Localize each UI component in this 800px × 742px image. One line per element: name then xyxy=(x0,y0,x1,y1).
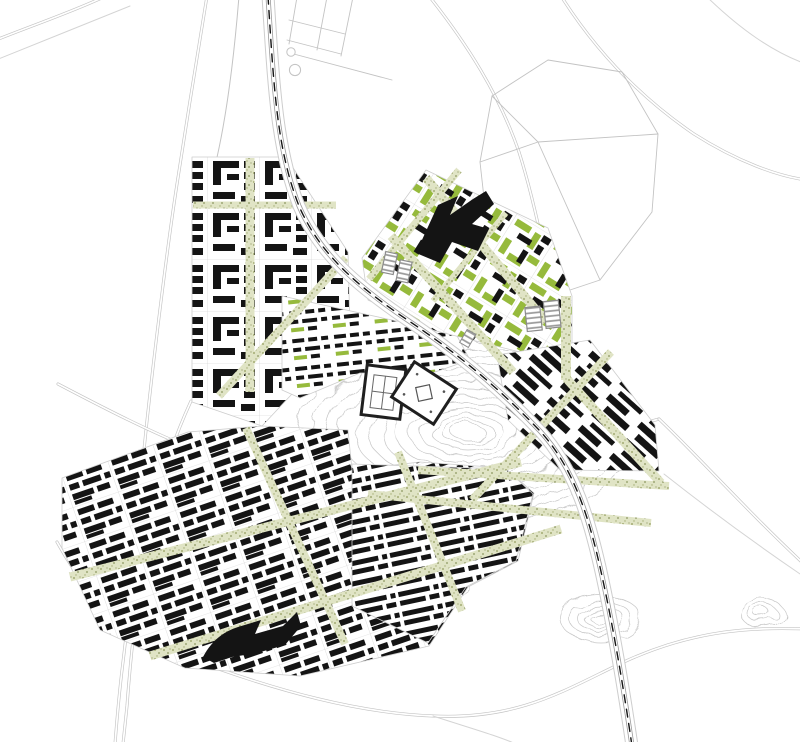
roundabout xyxy=(287,48,295,56)
knoll-southeast xyxy=(560,594,640,642)
roundabouts xyxy=(287,48,301,76)
masterplan-canvas xyxy=(0,0,800,742)
southeast-diagonal-road xyxy=(659,419,800,566)
rail-side-road xyxy=(215,0,239,166)
northeast-arc-core xyxy=(561,0,800,180)
districts xyxy=(62,157,659,676)
top-parcel-lines xyxy=(287,0,392,80)
northeast-arc-2 xyxy=(706,0,800,64)
corner-road xyxy=(0,0,106,40)
northeast-arc xyxy=(561,0,800,180)
roundabout xyxy=(289,64,300,75)
masterplan-map xyxy=(0,0,800,742)
corner-road-core xyxy=(0,0,106,40)
southeast-diagonal-2 xyxy=(664,474,800,578)
knoll-far-east xyxy=(741,600,785,628)
south-arc-stub xyxy=(433,716,516,742)
